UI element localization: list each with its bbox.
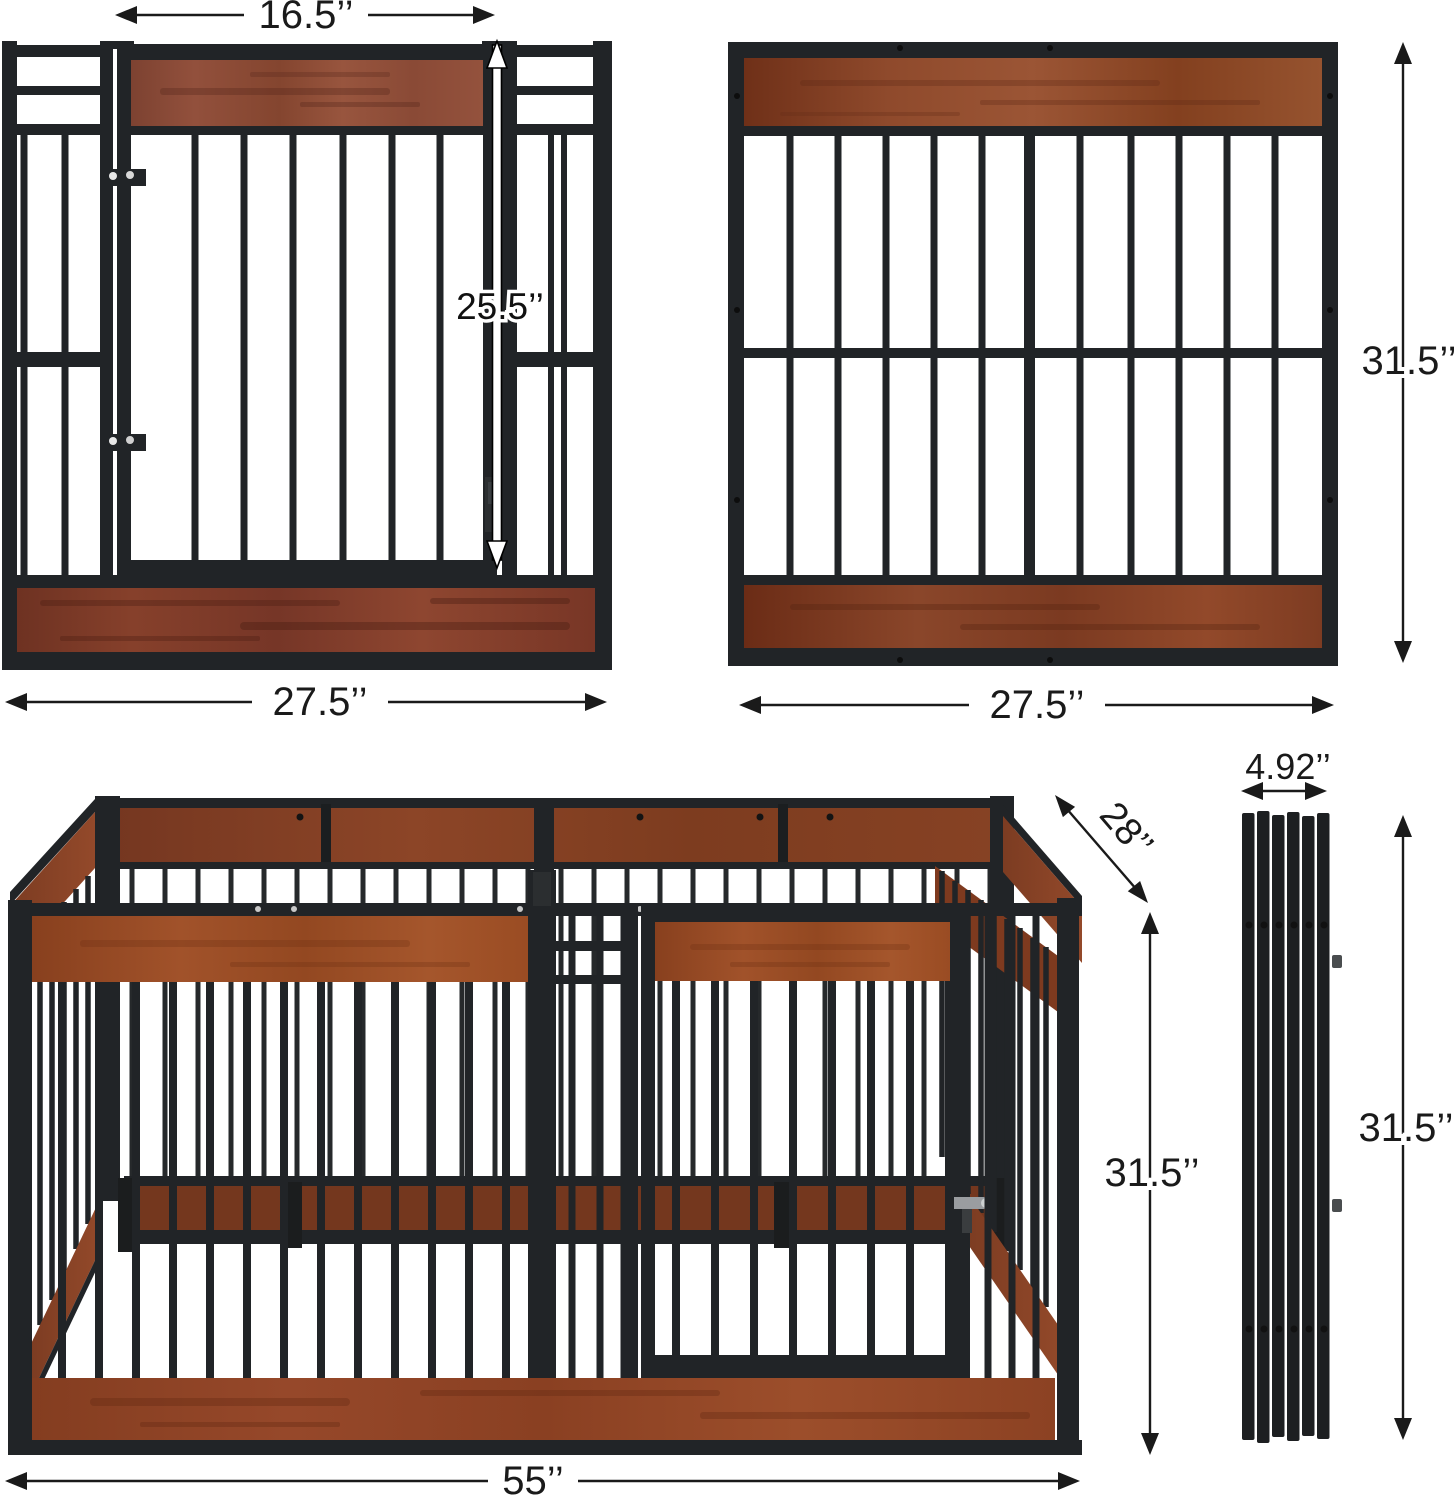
svg-text:27.5’’: 27.5’’ xyxy=(273,680,368,724)
svg-text:31.5’’: 31.5’’ xyxy=(1105,1151,1200,1195)
svg-text:4.92’’: 4.92’’ xyxy=(1245,746,1330,787)
svg-text:28’’: 28’’ xyxy=(1091,794,1161,866)
svg-text:55’’: 55’’ xyxy=(502,1459,564,1500)
svg-text:31.5’’: 31.5’’ xyxy=(1362,339,1454,383)
svg-text:16.5’’: 16.5’’ xyxy=(259,0,354,37)
svg-text:25.5’’: 25.5’’ xyxy=(456,286,544,327)
svg-text:27.5’’: 27.5’’ xyxy=(990,683,1085,727)
svg-text:31.5’’: 31.5’’ xyxy=(1359,1106,1454,1150)
